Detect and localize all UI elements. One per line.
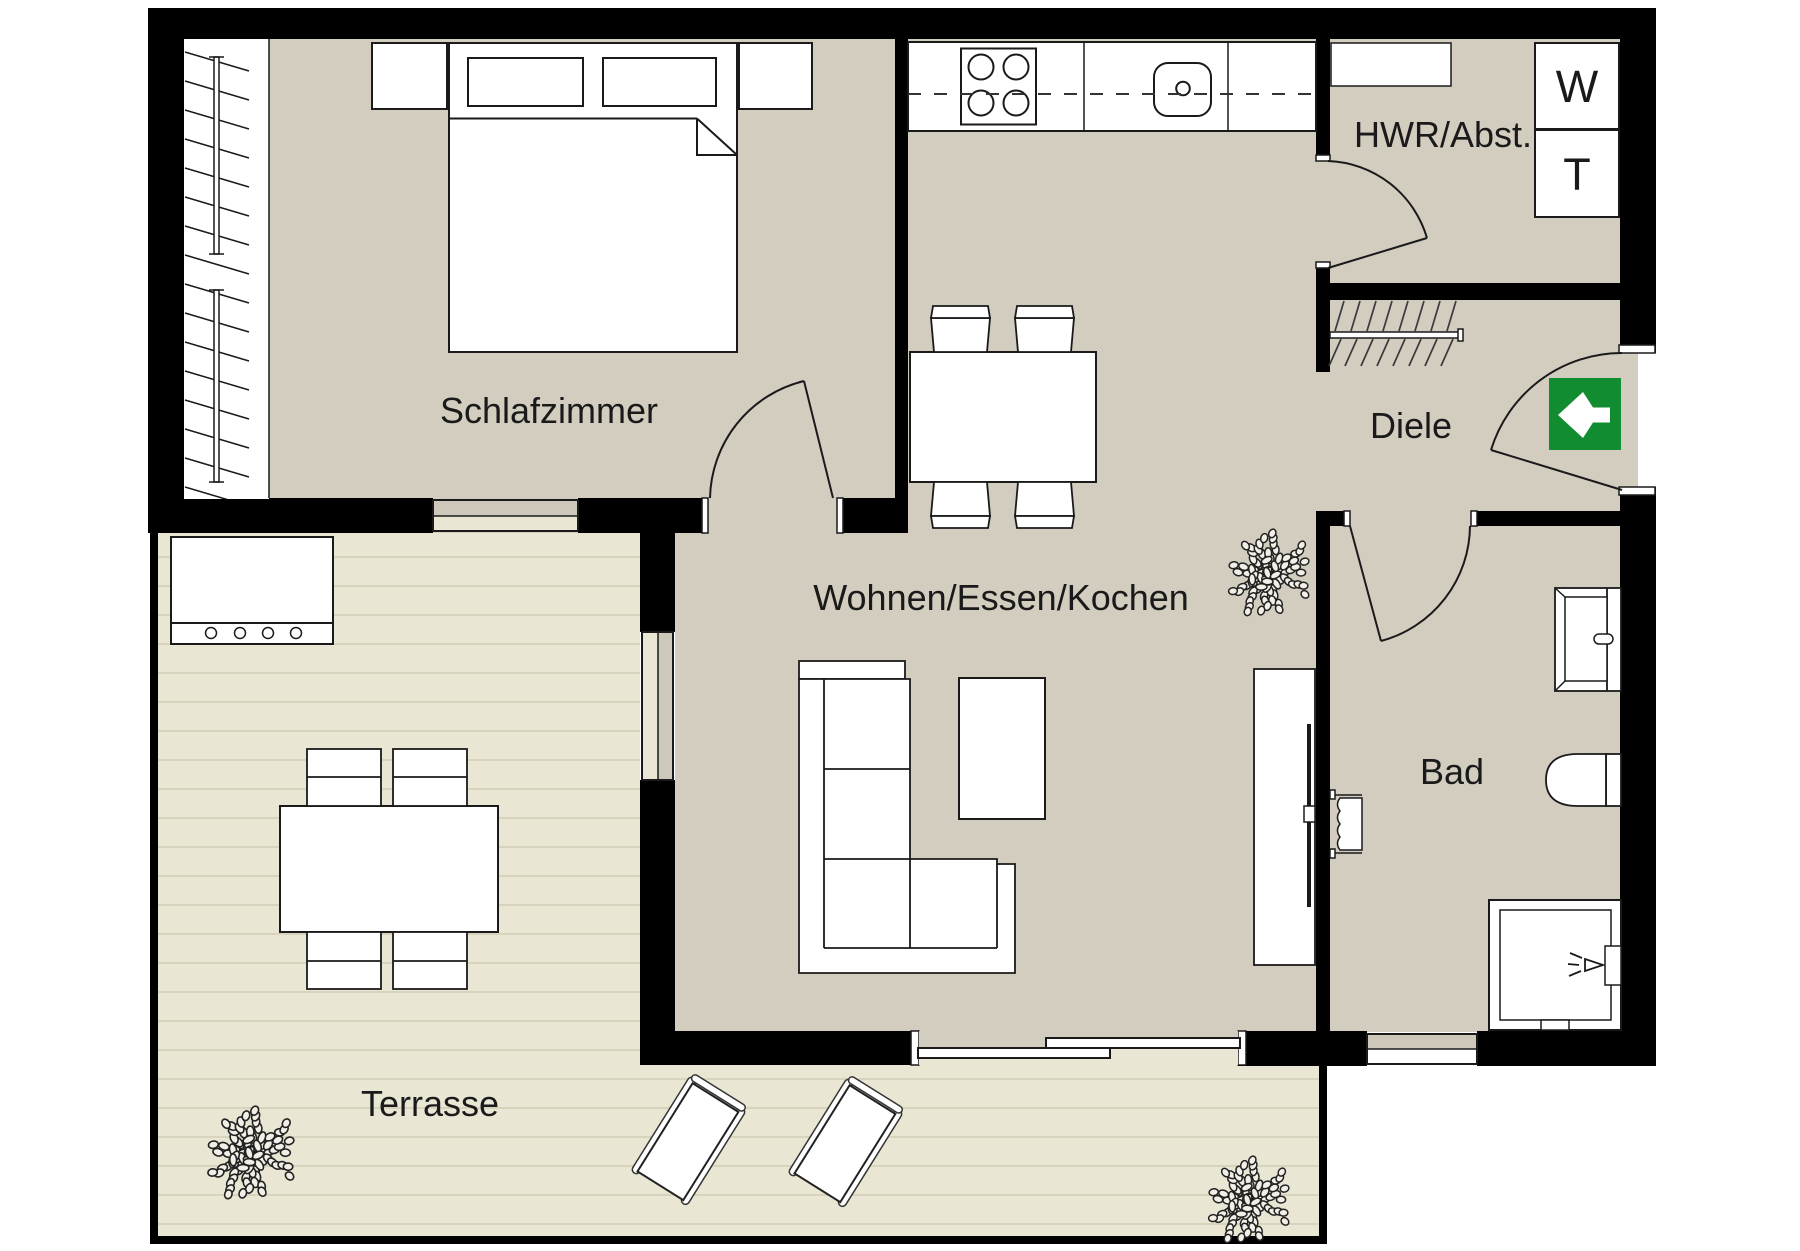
svg-text:Diele: Diele: [1370, 405, 1452, 446]
svg-text:HWR/Abst.: HWR/Abst.: [1354, 114, 1532, 155]
svg-text:Wohnen/Essen/Kochen: Wohnen/Essen/Kochen: [813, 577, 1189, 618]
svg-text:Schlafzimmer: Schlafzimmer: [440, 390, 658, 431]
svg-text:T: T: [1563, 149, 1591, 200]
svg-text:W: W: [1556, 61, 1599, 112]
svg-text:Bad: Bad: [1420, 751, 1484, 792]
svg-text:Terrasse: Terrasse: [361, 1083, 499, 1124]
